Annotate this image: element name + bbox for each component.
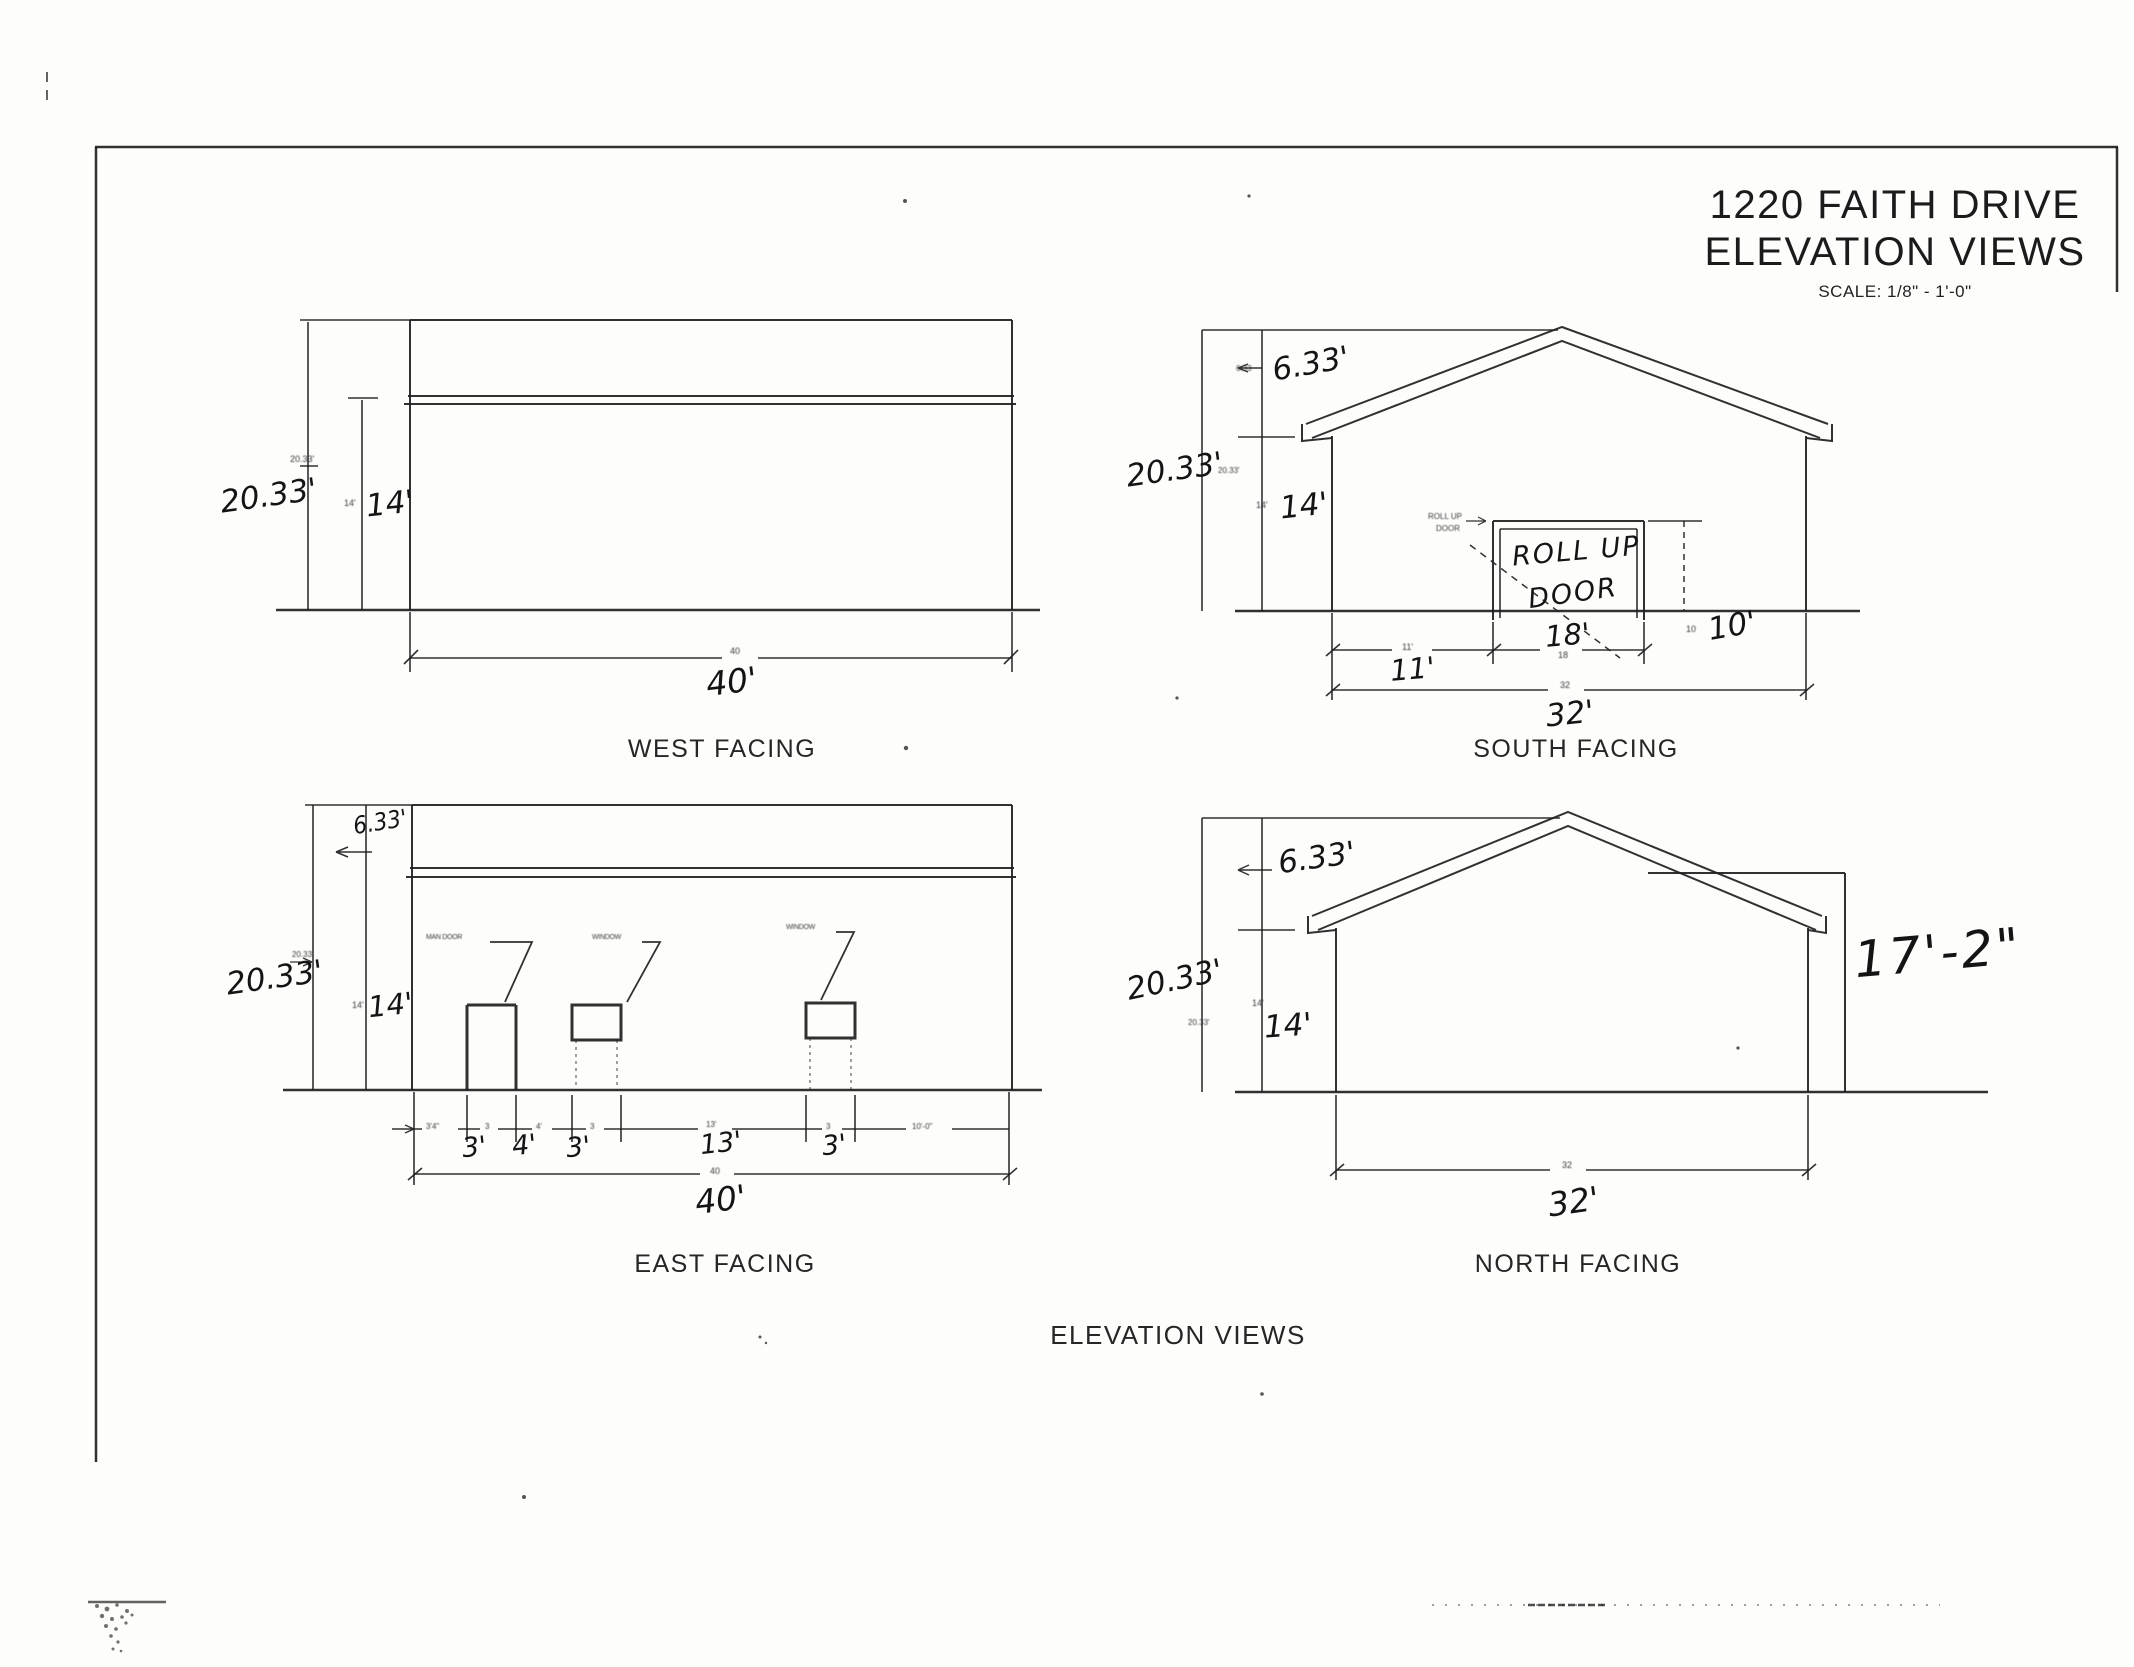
east-seg-hand-4: 13' [698,1126,743,1161]
west-width-hand: 40' [704,659,759,704]
north-width-hand: 32' [1546,1179,1602,1225]
view-label-west: WEST FACING [572,735,872,764]
south-door-width-hand: 18' [1544,616,1592,654]
view-label-south: SOUTH FACING [1426,735,1726,764]
page-border [47,72,2118,1462]
east-width-printed: 40 [710,1166,720,1176]
sheet-scale-note: SCALE: 1/8" - 1'-0" [1695,282,2095,302]
south-eave-height-printed: 14' [1256,500,1268,510]
footer-label: ELEVATION VIEWS [1018,1320,1338,1351]
south-door-offset-hand: 11' [1389,650,1437,688]
south-door-offset-printed: 11' [1402,642,1413,652]
east-opening-label-1: MAN DOOR [426,934,462,941]
west-eave-height-hand: 14' [364,484,415,525]
south-door-note-printed-line2: DOOR [1436,524,1460,533]
west-eave-height-printed: 14' [344,498,356,508]
east-seg-printed-4: 3 [590,1122,594,1131]
east-eave-height-hand: 14' [366,986,414,1025]
view-label-north: NORTH FACING [1428,1250,1728,1279]
west-total-height-printed: 20.33' [290,454,314,464]
bottom-left-smudge [88,1602,166,1652]
north-eave-height-printed: 14' [1252,998,1264,1008]
south-eave-height-hand: 14' [1278,486,1329,527]
east-seg-hand-3: 3' [564,1131,592,1164]
east-seg-hand-1: 3' [460,1131,488,1164]
scanned-elevation-sheet: 1220 FAITH DRIVE ELEVATION VIEWS SCALE: … [0,0,2134,1667]
south-width-printed: 32 [1560,680,1570,690]
east-seg-printed-2: 3 [485,1122,489,1131]
south-gable-height-printed: 6.33 [1236,364,1252,373]
north-width-printed: 32 [1562,1160,1572,1170]
south-door-note-printed-line1: ROLL UP [1428,512,1462,521]
north-eave-height-hand: 14' [1263,1006,1313,1045]
east-total-height-printed: 20.33' [292,950,314,959]
east-width-hand: 40' [693,1177,748,1222]
east-eave-height-printed: 14' [352,1000,364,1010]
west-width-printed: 40 [730,646,740,656]
north-total-height-printed: 20.33' [1188,1018,1210,1027]
sheet-title-line2: ELEVATION VIEWS [1695,230,2095,275]
scan-artifacts [522,194,1740,1499]
south-door-width-printed: 18 [1558,650,1568,660]
east-seg-printed-3: 4' [536,1122,542,1131]
east-seg-printed-1: 3'4" [426,1122,439,1131]
south-total-height-printed: 20.33' [1218,466,1240,475]
east-seg-hand-2: 4' [510,1129,538,1162]
sheet-title-line1: 1220 FAITH DRIVE [1695,183,2095,228]
south-width-hand: 32' [1544,694,1595,735]
east-opening-label-2: WINDOW [592,934,621,941]
east-seg-hand-5: 3' [820,1129,848,1162]
east-seg-printed-7: 10'-0" [912,1122,932,1131]
view-label-east: EAST FACING [575,1250,875,1279]
south-door-height-printed: 10 [1686,624,1696,634]
east-opening-label-3: WINDOW [786,924,815,931]
